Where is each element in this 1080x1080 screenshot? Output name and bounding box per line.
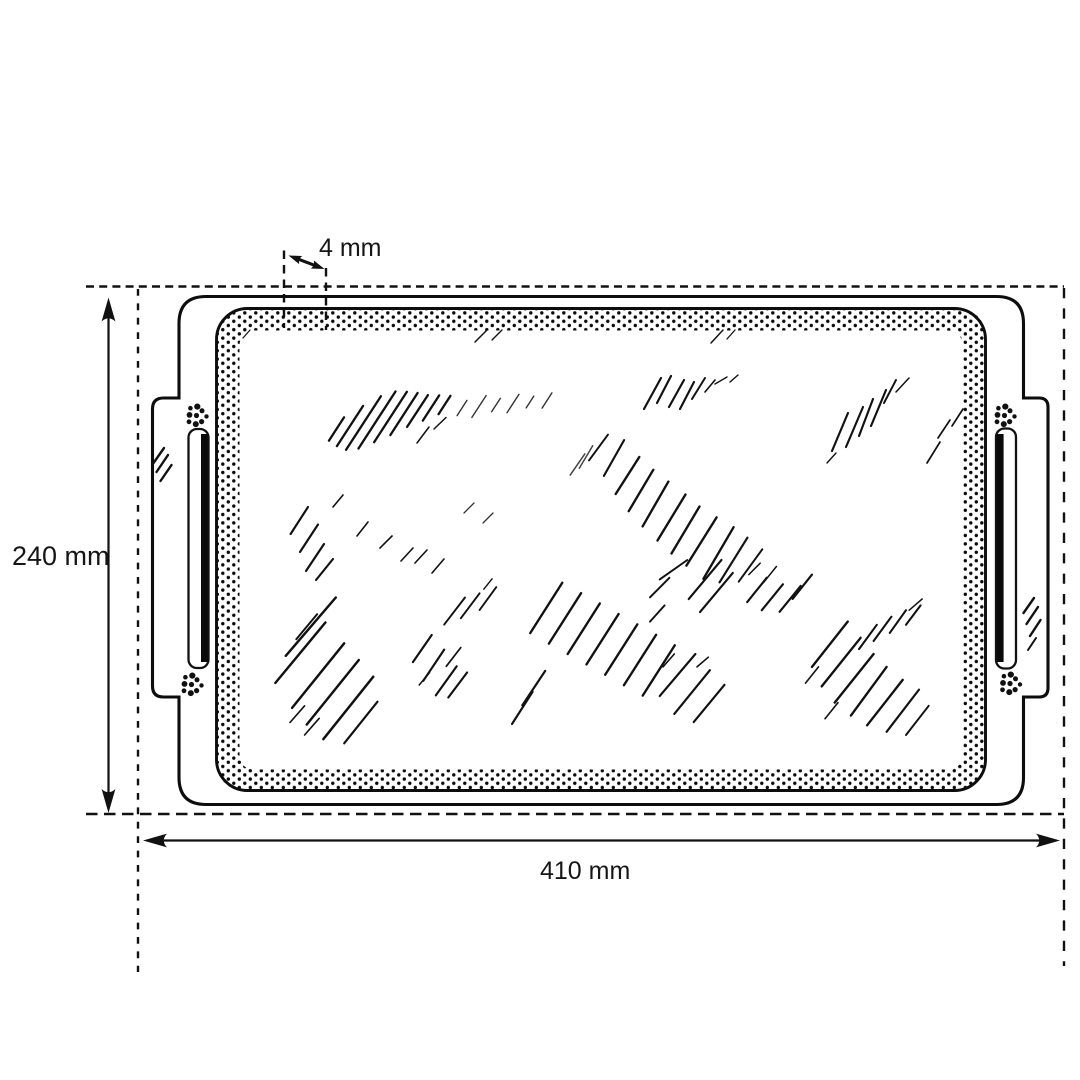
svg-text:4 mm: 4 mm [319, 234, 382, 262]
svg-text:410 mm: 410 mm [540, 857, 630, 885]
svg-text:240 mm: 240 mm [12, 541, 110, 571]
